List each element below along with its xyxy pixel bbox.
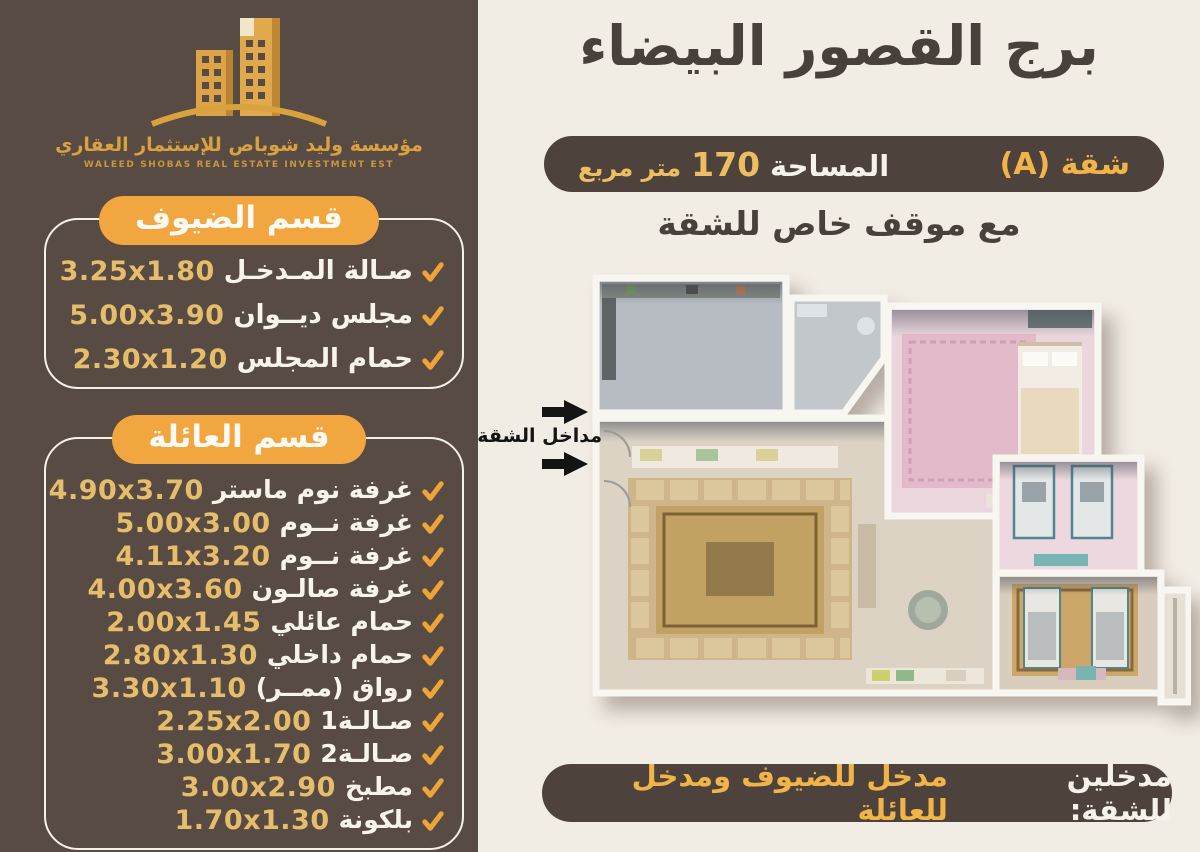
check-icon xyxy=(422,778,444,798)
check-icon xyxy=(422,514,444,534)
room-row: غرفة نــوم 5.00x3.00 xyxy=(64,508,448,539)
room-row: حمام عائلي 2.00x1.45 xyxy=(64,607,448,638)
area-label: المساحة xyxy=(770,149,889,183)
poster: مؤسسة وليد شوباص للإستثمار العقاري WALEE… xyxy=(0,0,1200,852)
room-dims: 2.25x2.00 xyxy=(156,706,311,737)
room-row: غرفة نــوم 4.11x3.20 xyxy=(64,541,448,572)
room-dims: 1.70x1.30 xyxy=(174,805,329,836)
room-name: صـالـة1 xyxy=(320,707,413,736)
room-dims: 3.25x1.80 xyxy=(60,256,215,287)
section-guests: قسم الضيوف صـالة المـدخـل 3.25x1.80 مجلس… xyxy=(0,196,478,389)
room-dims: 5.00x3.00 xyxy=(116,508,271,539)
room-dims: 2.80x1.30 xyxy=(103,640,258,671)
entrances-footer-pill: مدخلين للشقة: مدخل للضيوف ومدخل للعائلة xyxy=(542,764,1172,822)
parking-note: مع موقف خاص للشقة xyxy=(478,204,1200,243)
check-icon xyxy=(422,350,444,370)
area-unit: متر مربع xyxy=(578,154,681,182)
room-name: بلكونة xyxy=(339,806,413,835)
right-panel: برج القصور البيضاء شقة (A) المساحة 170 م… xyxy=(478,0,1200,852)
entrance-arrow-icon xyxy=(542,400,588,424)
page-title: برج القصور البيضاء xyxy=(478,16,1200,77)
logo-english-name: WALEED SHOBAS REAL ESTATE INVESTMENT EST xyxy=(0,160,478,170)
check-icon xyxy=(422,646,444,666)
room-dims: 5.00x3.90 xyxy=(69,300,224,331)
room-row: بلكونة 1.70x1.30 xyxy=(64,805,448,836)
room-name: غرفة نــوم xyxy=(280,542,413,571)
buildings-icon xyxy=(134,8,344,128)
room-dims: 4.90x3.70 xyxy=(49,475,204,506)
check-icon xyxy=(422,481,444,501)
check-icon xyxy=(422,306,444,326)
room-dims: 2.00x1.45 xyxy=(106,607,261,638)
entrance-arrow-icon xyxy=(542,452,588,476)
check-icon xyxy=(422,580,444,600)
room-name: غرفة نــوم xyxy=(280,509,413,538)
check-icon xyxy=(422,712,444,732)
section-family: قسم العائلة غرفة نوم ماستر 4.90x3.70 غرف… xyxy=(0,415,478,850)
room-row: حمام المجلس 2.30x1.20 xyxy=(64,344,448,375)
check-icon xyxy=(422,811,444,831)
room-name: حمام عائلي xyxy=(270,608,413,637)
room-name: غرفة نوم ماستر xyxy=(213,476,413,505)
room-name: صـالـة2 xyxy=(320,740,413,769)
room-name: مطبخ xyxy=(345,773,413,802)
room-name: رواق (ممــر) xyxy=(256,674,413,703)
logo-arabic-name: مؤسسة وليد شوباص للإستثمار العقاري xyxy=(0,134,478,156)
section-guests-title: قسم الضيوف xyxy=(99,196,379,245)
room-dims: 3.00x1.70 xyxy=(156,739,311,770)
room-name: صـالة المـدخـل xyxy=(224,257,413,287)
area-group: المساحة 170 متر مربع xyxy=(578,145,889,184)
room-row: صـالـة2 3.00x1.70 xyxy=(64,739,448,770)
apartment-info-pill: شقة (A) المساحة 170 متر مربع xyxy=(544,136,1164,192)
room-row: حمام داخلي 2.80x1.30 xyxy=(64,640,448,671)
room-name: غرفة صالـون xyxy=(252,575,413,604)
room-row: غرفة نوم ماستر 4.90x3.70 xyxy=(64,475,448,506)
room-name: مجلس ديــوان xyxy=(233,301,413,331)
room-dims: 3.00x2.90 xyxy=(181,772,336,803)
check-icon xyxy=(422,613,444,633)
apartment-label: شقة (A) xyxy=(1000,147,1130,182)
section-family-box: غرفة نوم ماستر 4.90x3.70 غرفة نــوم 5.00… xyxy=(44,437,464,850)
check-icon xyxy=(422,262,444,282)
room-row: غرفة صالـون 4.00x3.60 xyxy=(64,574,448,605)
room-name: حمام المجلس xyxy=(237,345,413,375)
entrance-label: مداخل الشقة xyxy=(484,425,602,447)
room-row: صـالة المـدخـل 3.25x1.80 xyxy=(64,256,448,287)
room-name: حمام داخلي xyxy=(267,641,413,670)
room-dims: 4.11x3.20 xyxy=(116,541,271,572)
check-icon xyxy=(422,679,444,699)
room-row: مطبخ 3.00x2.90 xyxy=(64,772,448,803)
room-row: رواق (ممــر) 3.30x1.10 xyxy=(64,673,448,704)
room-row: مجلس ديــوان 5.00x3.90 xyxy=(64,300,448,331)
floor-plan xyxy=(566,268,1191,760)
check-icon xyxy=(422,745,444,765)
footer-text: مدخل للضيوف ومدخل للعائلة xyxy=(542,759,948,827)
room-dims: 3.30x1.10 xyxy=(92,673,247,704)
room-dims: 4.00x3.60 xyxy=(87,574,242,605)
room-row: صـالـة1 2.25x2.00 xyxy=(64,706,448,737)
company-logo: مؤسسة وليد شوباص للإستثمار العقاري WALEE… xyxy=(0,8,478,170)
left-panel: مؤسسة وليد شوباص للإستثمار العقاري WALEE… xyxy=(0,0,478,852)
room-dims: 2.30x1.20 xyxy=(73,344,228,375)
check-icon xyxy=(422,547,444,567)
footer-prefix: مدخلين للشقة: xyxy=(960,759,1172,827)
section-family-title: قسم العائلة xyxy=(112,415,365,464)
entrance-arrows: مداخل الشقة xyxy=(484,400,604,484)
area-value: 170 xyxy=(691,145,760,184)
